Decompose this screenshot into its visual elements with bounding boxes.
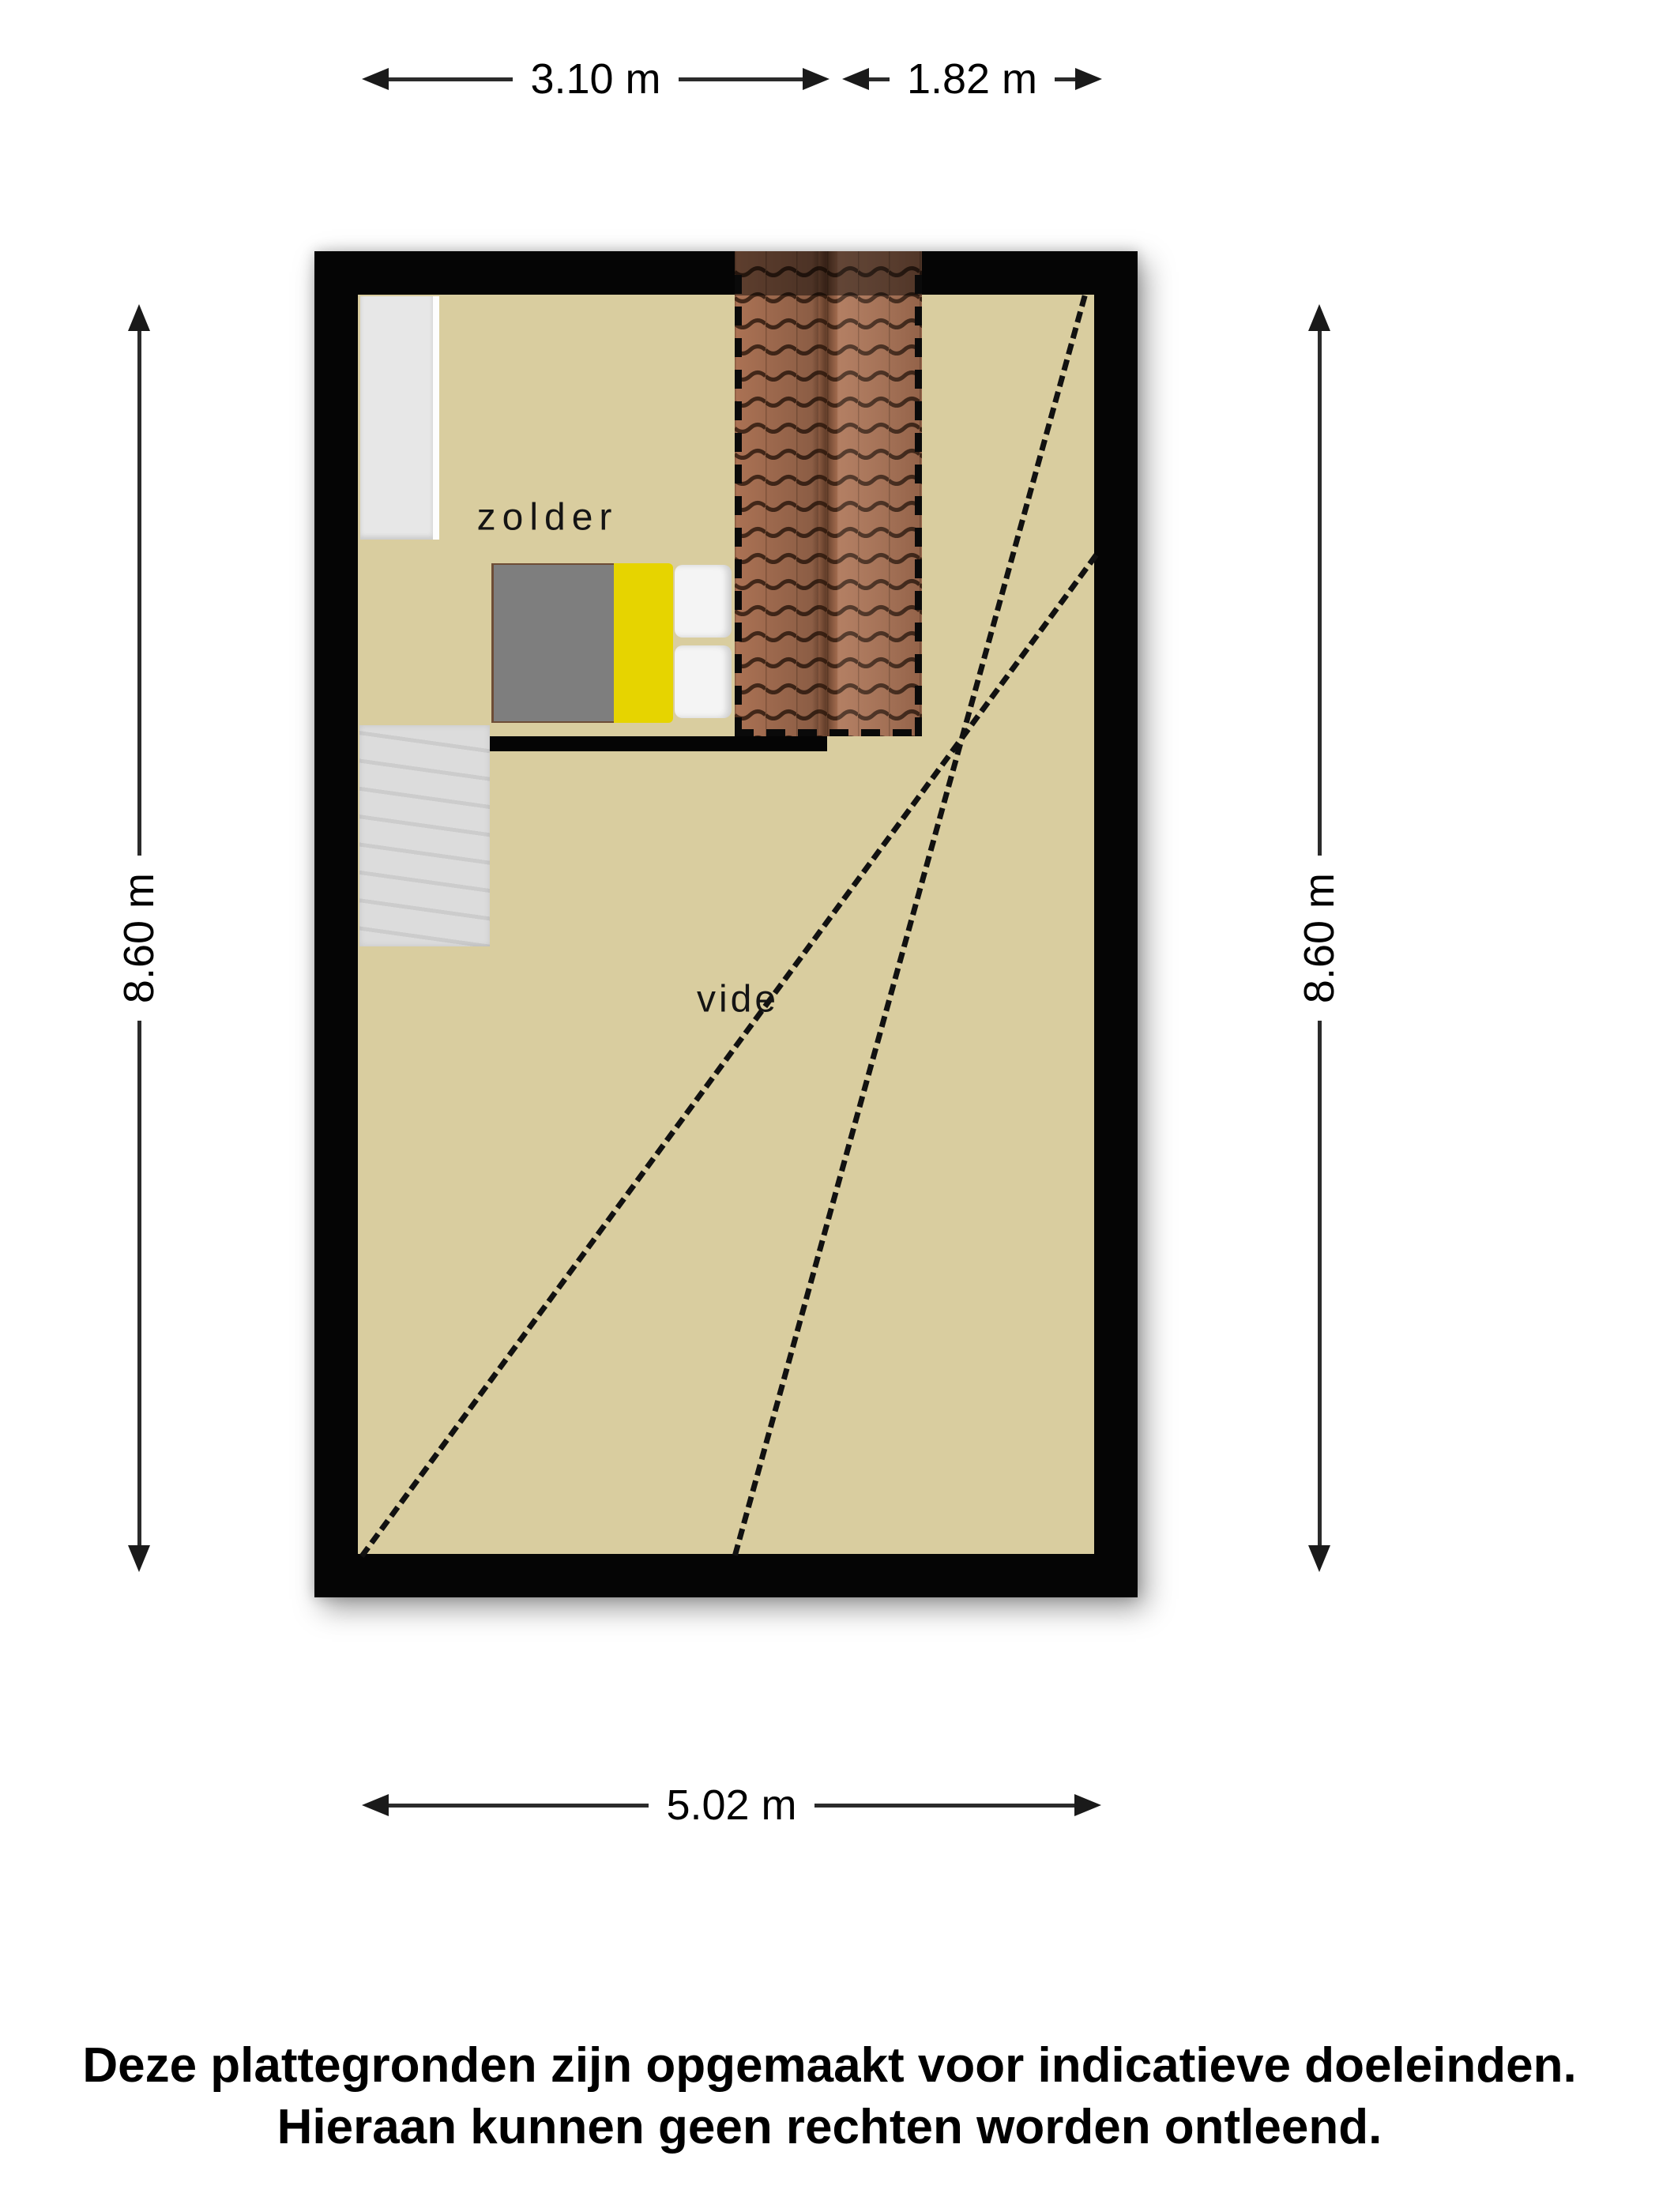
dimension-line (869, 77, 890, 81)
interior-wall (490, 736, 827, 751)
arrowhead-up-icon (128, 304, 150, 331)
dimension-label: 1.82 m (890, 58, 1055, 100)
dimension-line (1318, 1021, 1322, 1545)
closet (360, 296, 439, 540)
dimension-line (814, 1804, 1074, 1808)
disclaimer-line-2: Hieraan kunnen geen rechten worden ontle… (0, 2103, 1659, 2152)
pillow (675, 645, 732, 718)
double-bed (491, 563, 733, 723)
arrowhead-up-icon (1308, 304, 1330, 331)
arrowhead-down-icon (1308, 1545, 1330, 1572)
pillow (675, 565, 732, 638)
arrowhead-down-icon (128, 1545, 150, 1572)
dimension-label: 8.60 m (118, 856, 160, 1021)
room-label-vide: vide (697, 978, 779, 1021)
arrowhead-right-icon (1074, 1794, 1101, 1816)
dimension-line (137, 331, 141, 856)
dimension-left: 8.60 m (115, 304, 163, 1572)
dimension-bottom: 5.02 m (362, 1781, 1101, 1829)
arrowhead-right-icon (1075, 68, 1102, 90)
arrowhead-left-icon (362, 1794, 389, 1816)
bed-pillows (673, 563, 733, 723)
dimension-top-left: 3.10 m (362, 55, 829, 103)
bed-accent-stripe (614, 563, 673, 723)
dimension-label: 3.10 m (513, 58, 678, 100)
dimension-right: 8.60 m (1296, 304, 1343, 1572)
dimension-line (389, 1804, 649, 1808)
dimension-line (389, 77, 513, 81)
floor-plan: zolder vide (314, 251, 1138, 1597)
dimension-label: 8.60 m (1298, 856, 1341, 1021)
arrowhead-right-icon (803, 68, 829, 90)
dimension-top-right: 1.82 m (842, 55, 1102, 103)
dimension-line (1055, 77, 1075, 81)
arrowhead-left-icon (842, 68, 869, 90)
dimension-label: 5.02 m (649, 1784, 814, 1826)
dimension-line (1318, 331, 1322, 856)
dimension-line (679, 77, 803, 81)
dimension-line (137, 1021, 141, 1545)
arrowhead-left-icon (362, 68, 389, 90)
room-label-zolder: zolder (477, 496, 619, 540)
bed-duvet (491, 563, 614, 723)
roof-tile-strip (735, 251, 922, 736)
staircase (359, 725, 490, 946)
disclaimer-line-1: Deze plattegronden zijn opgemaakt voor i… (0, 2041, 1659, 2090)
